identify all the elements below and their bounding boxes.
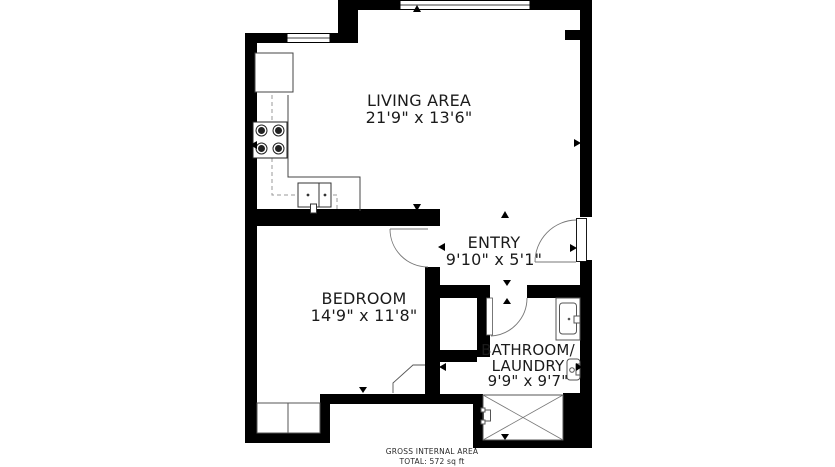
room-name: LIVING AREA xyxy=(366,92,473,109)
room-label-bathroom: BATHROOM/ LAUNDRY 9'9" x 9'7" xyxy=(481,343,575,390)
gross-area-line2: TOTAL: 572 sq ft xyxy=(386,457,479,467)
gross-area-note: GROSS INTERNAL AREA TOTAL: 572 sq ft xyxy=(386,447,479,467)
room-label-entry: ENTRY 9'10" x 5'1" xyxy=(446,234,542,268)
gross-area-line1: GROSS INTERNAL AREA xyxy=(386,447,479,457)
window-icon xyxy=(400,1,530,10)
floor-plan-drawing xyxy=(0,0,835,467)
bedroom-nook-lines xyxy=(393,365,425,393)
bedroom-door-swing-icon xyxy=(390,229,428,267)
entry-door-swing-icon xyxy=(535,219,587,263)
room-label-bedroom: BEDROOM 14'9" x 11'8" xyxy=(311,290,418,324)
kitchen-sink-icon xyxy=(298,183,331,213)
room-dims: 9'10" x 5'1" xyxy=(446,251,542,268)
room-name: BEDROOM xyxy=(311,290,418,307)
fridge-icon xyxy=(255,53,293,92)
window-icon xyxy=(287,34,330,43)
closet-icon xyxy=(257,403,320,433)
vanity-sink-icon xyxy=(556,298,580,340)
stove-icon xyxy=(253,122,287,158)
floor-plan-canvas: LIVING AREA 21'9" x 13'6" ENTRY 9'10" x … xyxy=(0,0,835,467)
room-dims: 9'9" x 9'7" xyxy=(481,374,575,390)
room-dims: 14'9" x 11'8" xyxy=(311,307,418,324)
room-name: ENTRY xyxy=(446,234,542,251)
room-dims: 21'9" x 13'6" xyxy=(366,109,473,126)
room-label-living: LIVING AREA 21'9" x 13'6" xyxy=(366,92,473,126)
shower-washer-icon xyxy=(481,395,563,440)
